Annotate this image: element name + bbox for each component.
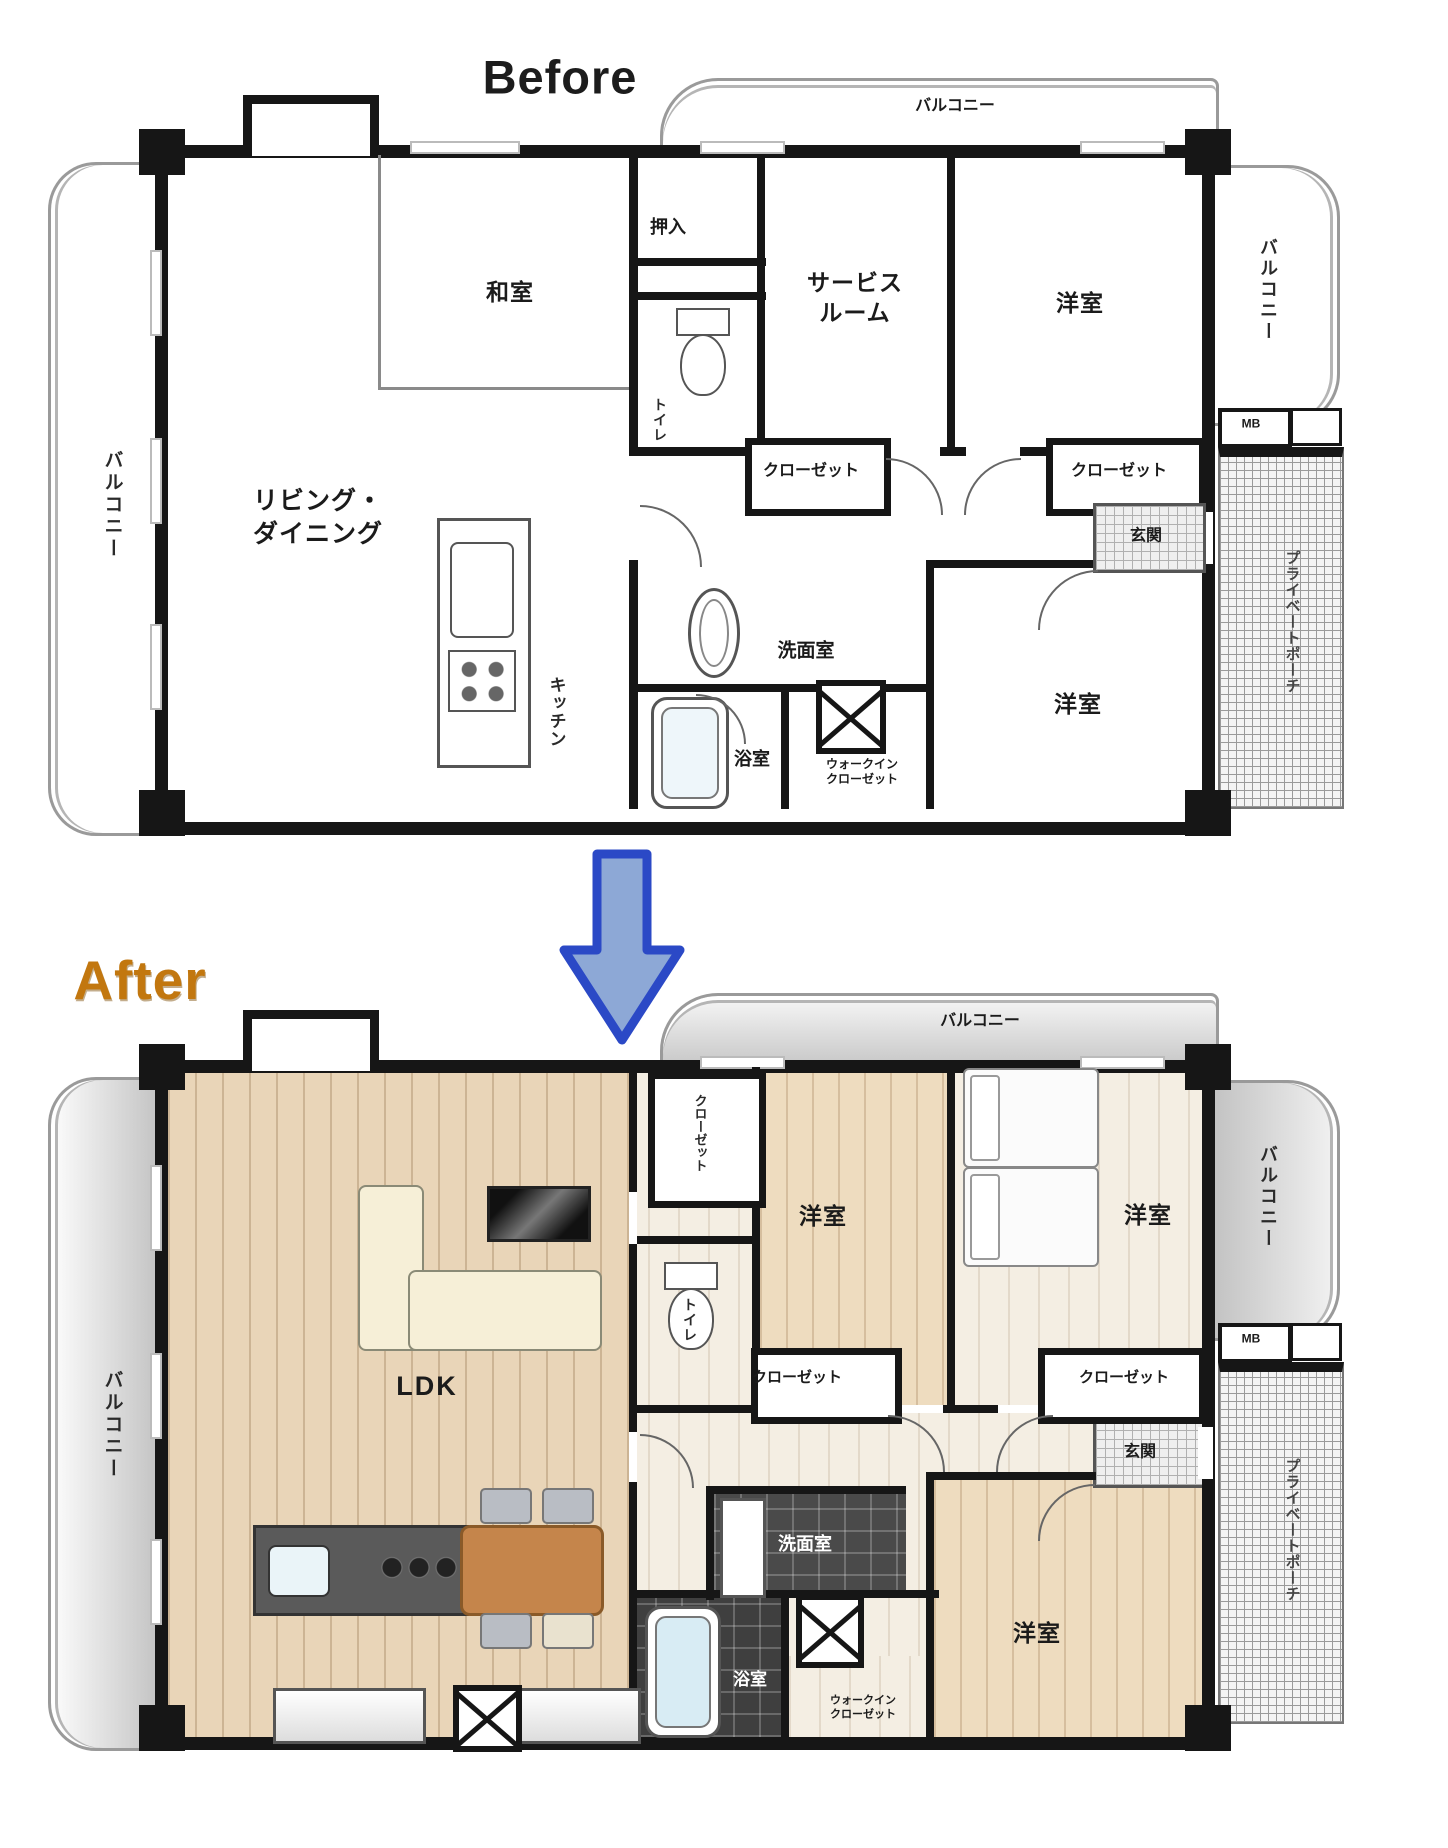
after-bay-window (243, 1010, 379, 1071)
after-genkan-label: 玄関 (1124, 1441, 1156, 1462)
after-hall-closet-label: クローゼット (691, 1094, 710, 1172)
after-bath-label: 浴室 (733, 1669, 767, 1691)
after-window-left-3 (150, 1539, 162, 1625)
after-closet-right-label: クローゼット (1079, 1368, 1169, 1388)
after-vanity (720, 1498, 766, 1598)
after-ldk-label: LDK (396, 1369, 458, 1405)
after-wic-label: ウォークイン クローゼット (830, 1694, 896, 1722)
after-bed-1 (963, 1068, 1099, 1168)
after-youshitsu-ne-label: 洋室 (1124, 1200, 1172, 1230)
after-balcony-left-label: バルコニー (99, 1370, 126, 1480)
after-counter-left (273, 1688, 426, 1744)
after-senmen-label: 洗面室 (778, 1533, 832, 1557)
after-door-gap-ldk (629, 1432, 637, 1482)
after-wall-se-left (926, 1480, 934, 1737)
after-balcony-right-label: バルコニー (1255, 1145, 1281, 1250)
after-toilet-label: トイレ (680, 1298, 700, 1343)
renovation-floorplan-comparison: Before (0, 0, 1448, 1848)
after-wall-washroom-top (706, 1486, 906, 1494)
after-toilet-tank-icon (664, 1262, 718, 1290)
after-sofa-seat (408, 1270, 602, 1351)
after-window-top-1 (700, 1056, 785, 1069)
after-private-porch-label: プライベートポーチ (1282, 1458, 1303, 1602)
after-youshitsu-center-label: 洋室 (799, 1201, 847, 1231)
after-bathtub-icon (645, 1606, 721, 1738)
after-counter-right (513, 1688, 641, 1744)
after-wall-toilet-top (637, 1236, 760, 1244)
after-chair-3 (480, 1613, 532, 1649)
after-wall-bath-wic (781, 1598, 789, 1737)
after-door-gap-hall (629, 1192, 637, 1244)
after-wall-washroom-left (706, 1486, 714, 1600)
after-pillar-sw (139, 1705, 185, 1751)
after-closet-center-label: クローゼット (752, 1368, 842, 1388)
after-chair-2 (542, 1488, 594, 1524)
after-bed-2 (963, 1167, 1099, 1267)
after-chair-4 (542, 1613, 594, 1649)
after-pipe-space-box (796, 1594, 864, 1668)
after-tv-board (487, 1186, 591, 1242)
after-kitchen-sink (268, 1545, 330, 1597)
after-youshitsu-se-label: 洋室 (1013, 1618, 1061, 1648)
after-meter-box-label: MB (1242, 1332, 1261, 1347)
after-entry-door-gap (1198, 1427, 1213, 1479)
after-pipe-space-ldk (453, 1685, 522, 1752)
after-balcony-top-label: バルコニー (940, 1010, 1020, 1031)
after-wall-se-top (926, 1472, 1096, 1480)
after-wall-bath-top (629, 1590, 939, 1598)
after-plan: バルコニー バルコニー バルコニー プライベートポーチ MB クローゼット LD… (0, 0, 1448, 1848)
after-chair-1 (480, 1488, 532, 1524)
after-meter-box-2 (1290, 1323, 1342, 1361)
after-pillar-se (1185, 1705, 1231, 1751)
after-dining-table (460, 1525, 604, 1616)
after-kitchen-burners (378, 1540, 460, 1595)
after-window-left-1 (150, 1165, 162, 1251)
after-pillar-ne (1185, 1044, 1231, 1090)
after-wall-bedrooms (947, 1067, 955, 1410)
after-pillar-nw (139, 1044, 185, 1090)
after-window-left-2 (150, 1353, 162, 1439)
